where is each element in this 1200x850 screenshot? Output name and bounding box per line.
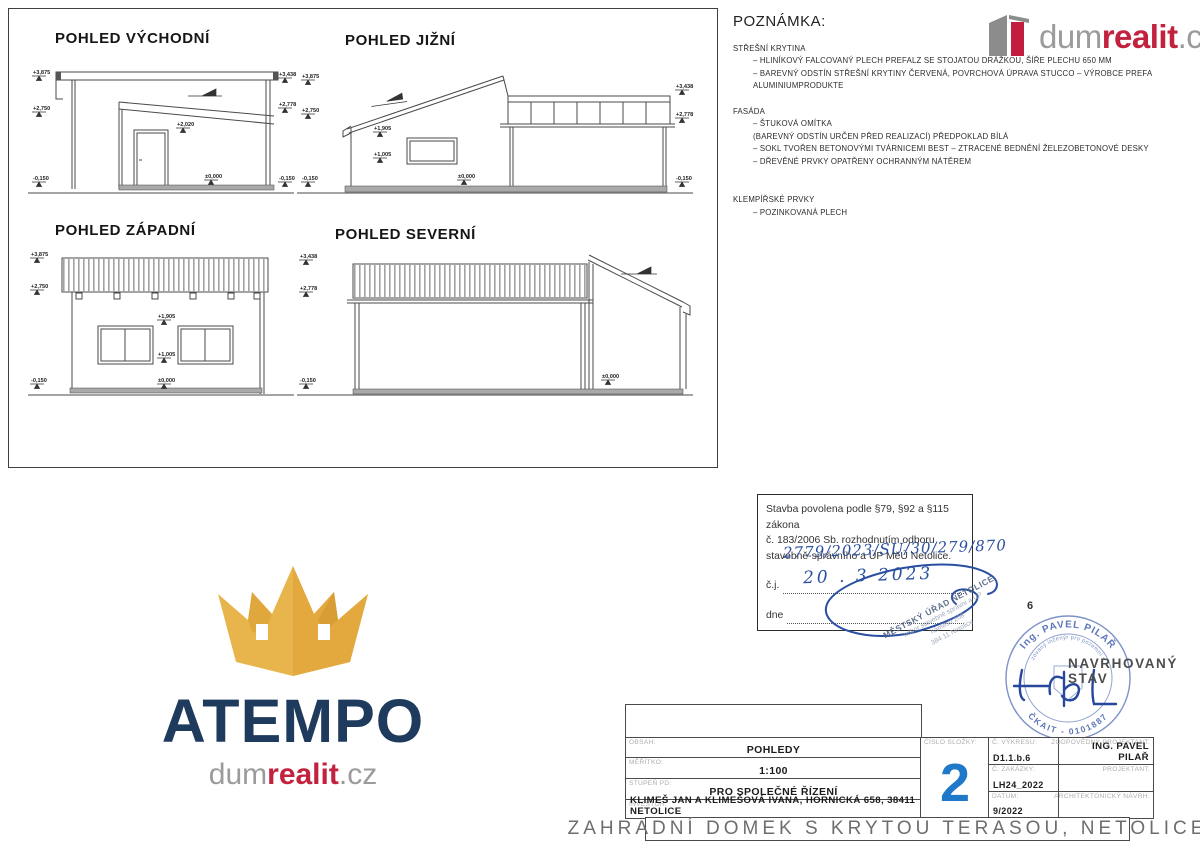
notes-item: – POZINKOVANÁ PLECH — [733, 207, 1200, 219]
logo-realit: realit — [1102, 18, 1178, 55]
permit-text-line: Stavba povolena podle §79, §92 a §115 zá… — [766, 502, 964, 533]
notes-item: – ŠTUKOVÁ OMÍTKA — [733, 118, 1200, 130]
level-marker: +1,905 — [158, 314, 175, 320]
datum-value: 9/2022 — [993, 806, 1059, 816]
drawing-sheet: POHLED VÝCHODNÍ POHLED JIŽNÍ POHLED ZÁPA… — [0, 0, 1200, 850]
notes-item: – SOKL TVOŘEN BETONOVÝMI TVÁRNICEMI BEST… — [733, 143, 1200, 155]
level-marker: +3,438 — [676, 84, 693, 90]
investor-value: KLIMEŠ JAN A KLIMEŠOVÁ IVANA, HORNICKÁ 6… — [630, 795, 921, 817]
logo-cz: .cz — [1178, 18, 1200, 55]
atempo-dumrealit: dumrealit.cz — [128, 758, 458, 792]
level-marker: +1,905 — [374, 126, 391, 132]
titleblock-empty-row — [625, 704, 922, 739]
level-marker: -0,150 — [302, 176, 318, 182]
zodpovedny-value: ING. PAVEL PILAŘ — [1059, 741, 1149, 763]
slope-symbol — [370, 93, 407, 107]
titleblock-vykres-cell: Č. VÝKRESU: D1.1.b.6 — [988, 737, 1060, 766]
level-marker: -0,150 — [33, 176, 49, 182]
titleblock-obsah-cell: OBSAH: POHLEDY — [625, 737, 922, 759]
titleblock-projektant-cell: PROJEKTANT: — [1058, 764, 1154, 793]
level-marker: +3,875 — [33, 70, 50, 76]
notes-heading: FASÁDA — [733, 106, 1200, 118]
notes-item: – DŘEVĚNÉ PRVKY OPATŘENY OCHRANNÝM NÁTĚR… — [733, 156, 1200, 168]
level-marker: +3,875 — [31, 252, 48, 258]
view-title-south: POHLED JIŽNÍ — [345, 32, 456, 49]
view-title-west: POHLED ZÁPADNÍ — [55, 222, 196, 239]
cislo-slozky-value: 2 — [921, 756, 989, 810]
level-marker: +1,005 — [374, 152, 391, 158]
level-marker: +3,875 — [302, 74, 319, 80]
titleblock-datum-cell: DATUM: 9/2022 — [988, 791, 1060, 819]
elevation-west-drawing: +3,875 +2,750 -0,150 +1,905 +1,005 ±0,00… — [26, 242, 298, 404]
level-marker: -0,150 — [300, 378, 316, 384]
cj-label: č.j. — [766, 578, 779, 594]
slope-symbol — [621, 267, 657, 274]
titleblock-zakazka-cell: Č. ZAKÁZKY: LH24_2022 — [988, 764, 1060, 793]
notes-item: (BAREVNÝ ODSTÍN URČEN PŘED REALIZACÍ) PŘ… — [733, 131, 1200, 143]
cislo-slozky-label: ČÍSLO SLOŽKY: — [924, 739, 977, 746]
elevation-south-drawing: +3,875 +2,750 -0,150 +1,905 +1,005 ±0,00… — [295, 52, 697, 204]
elevation-north-drawing: +3,438 +2,778 -0,150 ±0,000 — [295, 242, 697, 404]
titleblock-arch-cell: ARCHITEKTONICKÝ NÁVRH: — [1058, 791, 1154, 819]
notes-heading: KLEMPÍŘSKÉ PRVKY — [733, 194, 1200, 206]
notes-item: – BAREVNÝ ODSTÍN STŘEŠNÍ KRYTINY ČERVENÁ… — [733, 68, 1200, 93]
dumrealit-logo: dumrealit.cz — [983, 10, 1200, 60]
level-marker: -0,150 — [676, 176, 692, 182]
level-marker: -0,150 — [31, 378, 47, 384]
stamp-arc-name: Ing. PAVEL PILAŘ — [1018, 619, 1119, 651]
level-marker: +2,778 — [279, 102, 296, 108]
level-marker: +3,438 — [279, 72, 296, 78]
elevation-east-drawing: +3,875 +2,750 -0,150 +3,438 +2,778 -0,15… — [26, 52, 298, 204]
project-title-band: ZAHRADNÍ DOMEK S KRYTOU TERASOU, NETOLIC… — [645, 817, 1130, 841]
level-marker: ±0,000 — [158, 378, 175, 384]
level-marker: ±0,000 — [602, 374, 619, 380]
c-zakazky-value: LH24_2022 — [993, 780, 1059, 790]
titleblock-investor-cell: INVESTOR: KLIMEŠ JAN A KLIMEŠOVÁ IVANA, … — [625, 799, 922, 819]
status-label: NAVRHOVANÝ STAV — [1068, 656, 1200, 686]
view-title-north: POHLED SEVERNÍ — [335, 226, 476, 243]
level-marker: +2,750 — [302, 108, 319, 114]
logo-dum: dum — [209, 758, 267, 791]
atempo-logo: ATEMPO dumrealit.cz — [128, 562, 458, 792]
slope-symbol — [188, 89, 222, 96]
level-marker: ±0,000 — [205, 174, 222, 180]
level-marker: +1,005 — [158, 352, 175, 358]
level-marker: -0,150 — [279, 176, 295, 182]
dumrealit-house-icon — [983, 10, 1033, 60]
level-marker: +2,778 — [676, 112, 693, 118]
dne-label: dne — [766, 608, 783, 624]
projektant-label: PROJEKTANT: — [1102, 766, 1150, 773]
titleblock-zodpovedny-cell: ZODPOVĚDNÝ PROJEKTANT: ING. PAVEL PILAŘ — [1058, 737, 1154, 766]
logo-realit: realit — [267, 758, 339, 791]
level-marker: +2,020 — [177, 122, 194, 128]
dumrealit-wordmark: dumrealit.cz — [1039, 18, 1200, 56]
crown-icon — [178, 562, 408, 682]
arch-navrh-label: ARCHITEKTONICKÝ NÁVRH: — [1054, 793, 1150, 800]
atempo-wordmark: ATEMPO — [128, 686, 458, 756]
logo-cz: .cz — [339, 758, 377, 791]
level-marker: +3,438 — [300, 254, 317, 260]
obsah-value: POHLEDY — [626, 744, 921, 756]
level-marker: +2,778 — [300, 286, 317, 292]
level-marker: +2,750 — [31, 284, 48, 290]
titleblock-meritko-cell: MĚŘÍTKO: 1:100 — [625, 757, 922, 780]
c-vykresu-value: D1.1.b.6 — [993, 753, 1059, 763]
c-zakazky-label: Č. ZAKÁZKY: — [992, 766, 1035, 773]
view-title-east: POHLED VÝCHODNÍ — [55, 30, 210, 47]
c-vykresu-label: Č. VÝKRESU: — [992, 739, 1037, 746]
svg-text:Ing. PAVEL PILAŘ: Ing. PAVEL PILAŘ — [1018, 619, 1119, 651]
titleblock-cislo-slozky-cell: ČÍSLO SLOŽKY: 2 — [920, 737, 990, 819]
logo-dum: dum — [1039, 18, 1102, 55]
level-marker: +2,750 — [33, 106, 50, 112]
datum-label: DATUM: — [992, 793, 1019, 800]
meritko-value: 1:100 — [626, 765, 921, 777]
level-marker: ±0,000 — [458, 174, 475, 180]
